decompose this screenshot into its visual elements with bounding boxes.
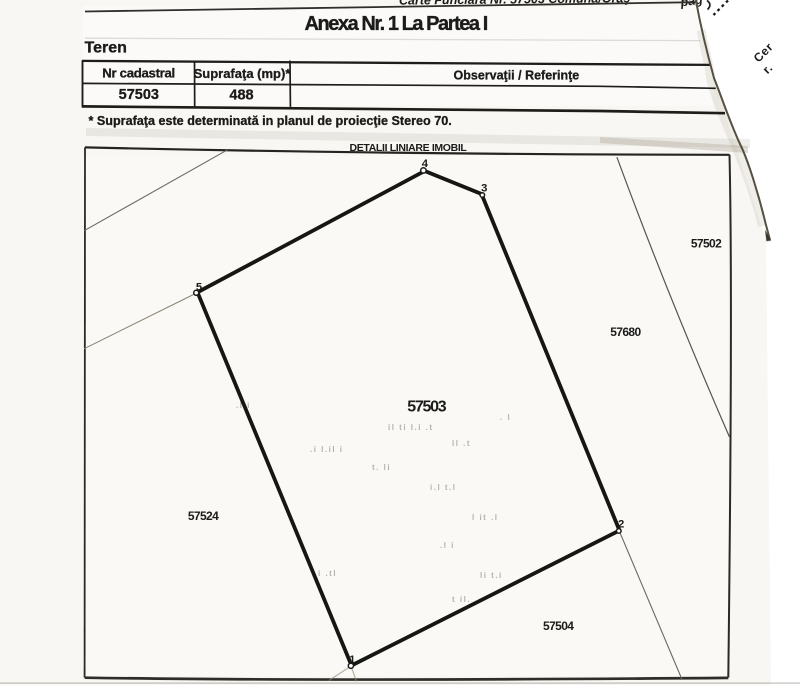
svg-text:57503: 57503 bbox=[407, 399, 446, 416]
svg-text:57680: 57680 bbox=[610, 325, 641, 339]
svg-text:57504: 57504 bbox=[543, 619, 574, 633]
svg-text:57524: 57524 bbox=[188, 509, 219, 523]
svg-text:Anexa Nr. 1 La Partea I: Anexa Nr. 1 La Partea I bbox=[305, 13, 488, 35]
svg-text:ll .t: ll .t bbox=[452, 439, 471, 448]
svg-text:l it .l: l it .l bbox=[472, 513, 499, 522]
svg-text:57503: 57503 bbox=[119, 87, 159, 103]
svg-text:i.l t.l: i.l t.l bbox=[430, 483, 457, 492]
svg-text:57502: 57502 bbox=[691, 236, 722, 250]
svg-text:Observaţii / Referinţe: Observaţii / Referinţe bbox=[454, 69, 580, 83]
svg-text:il ti l.i .t: il ti l.i .t bbox=[388, 423, 434, 432]
svg-text:1: 1 bbox=[349, 654, 355, 666]
svg-text:Teren: Teren bbox=[85, 40, 127, 57]
svg-text:2: 2 bbox=[618, 519, 624, 531]
svg-text:* Suprafaţa este determinată i: * Suprafaţa este determinată in planul d… bbox=[89, 114, 452, 128]
svg-text:t. li: t. li bbox=[372, 463, 391, 472]
svg-text:488: 488 bbox=[229, 87, 253, 103]
svg-text:i .tl: i .tl bbox=[318, 569, 337, 578]
svg-text:Suprafaţa (mp)*: Suprafaţa (mp)* bbox=[194, 66, 292, 81]
svg-text:t il.: t il. bbox=[452, 595, 471, 604]
svg-text:3: 3 bbox=[481, 183, 487, 195]
svg-text:5: 5 bbox=[196, 281, 202, 293]
svg-text:. l: . l bbox=[500, 413, 511, 422]
svg-text:.i l.il i: .i l.il i bbox=[310, 445, 344, 454]
svg-text:4: 4 bbox=[422, 158, 429, 170]
svg-text:li t.i: li t.i bbox=[480, 571, 503, 580]
svg-text:.l i: .l i bbox=[236, 401, 251, 410]
svg-text:Nr cadastral: Nr cadastral bbox=[102, 66, 175, 81]
svg-text:.l i: .l i bbox=[440, 541, 455, 550]
